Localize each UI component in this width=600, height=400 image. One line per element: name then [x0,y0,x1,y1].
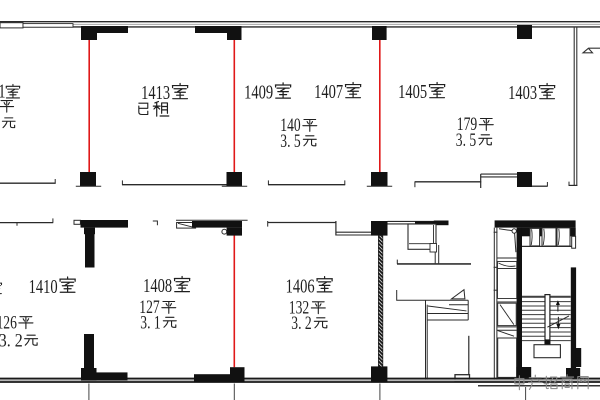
svg-text:1407: 1407 [314,81,343,103]
svg-text:1403: 1403 [508,82,537,104]
svg-text:1405: 1405 [398,81,427,103]
svg-text:1409: 1409 [244,82,273,104]
svg-text:1: 1 [0,80,6,102]
svg-text:3. 2: 3. 2 [0,331,23,352]
svg-text:3. 2: 3. 2 [291,313,311,334]
svg-text:3. 5: 3. 5 [456,130,476,151]
svg-text:1413: 1413 [141,82,170,104]
svg-text:3. 5: 3. 5 [280,131,300,152]
svg-text:1408: 1408 [143,275,172,297]
svg-text:3. 1: 3. 1 [140,313,160,334]
svg-text:1410: 1410 [29,276,58,298]
svg-text:1406: 1406 [286,275,315,297]
